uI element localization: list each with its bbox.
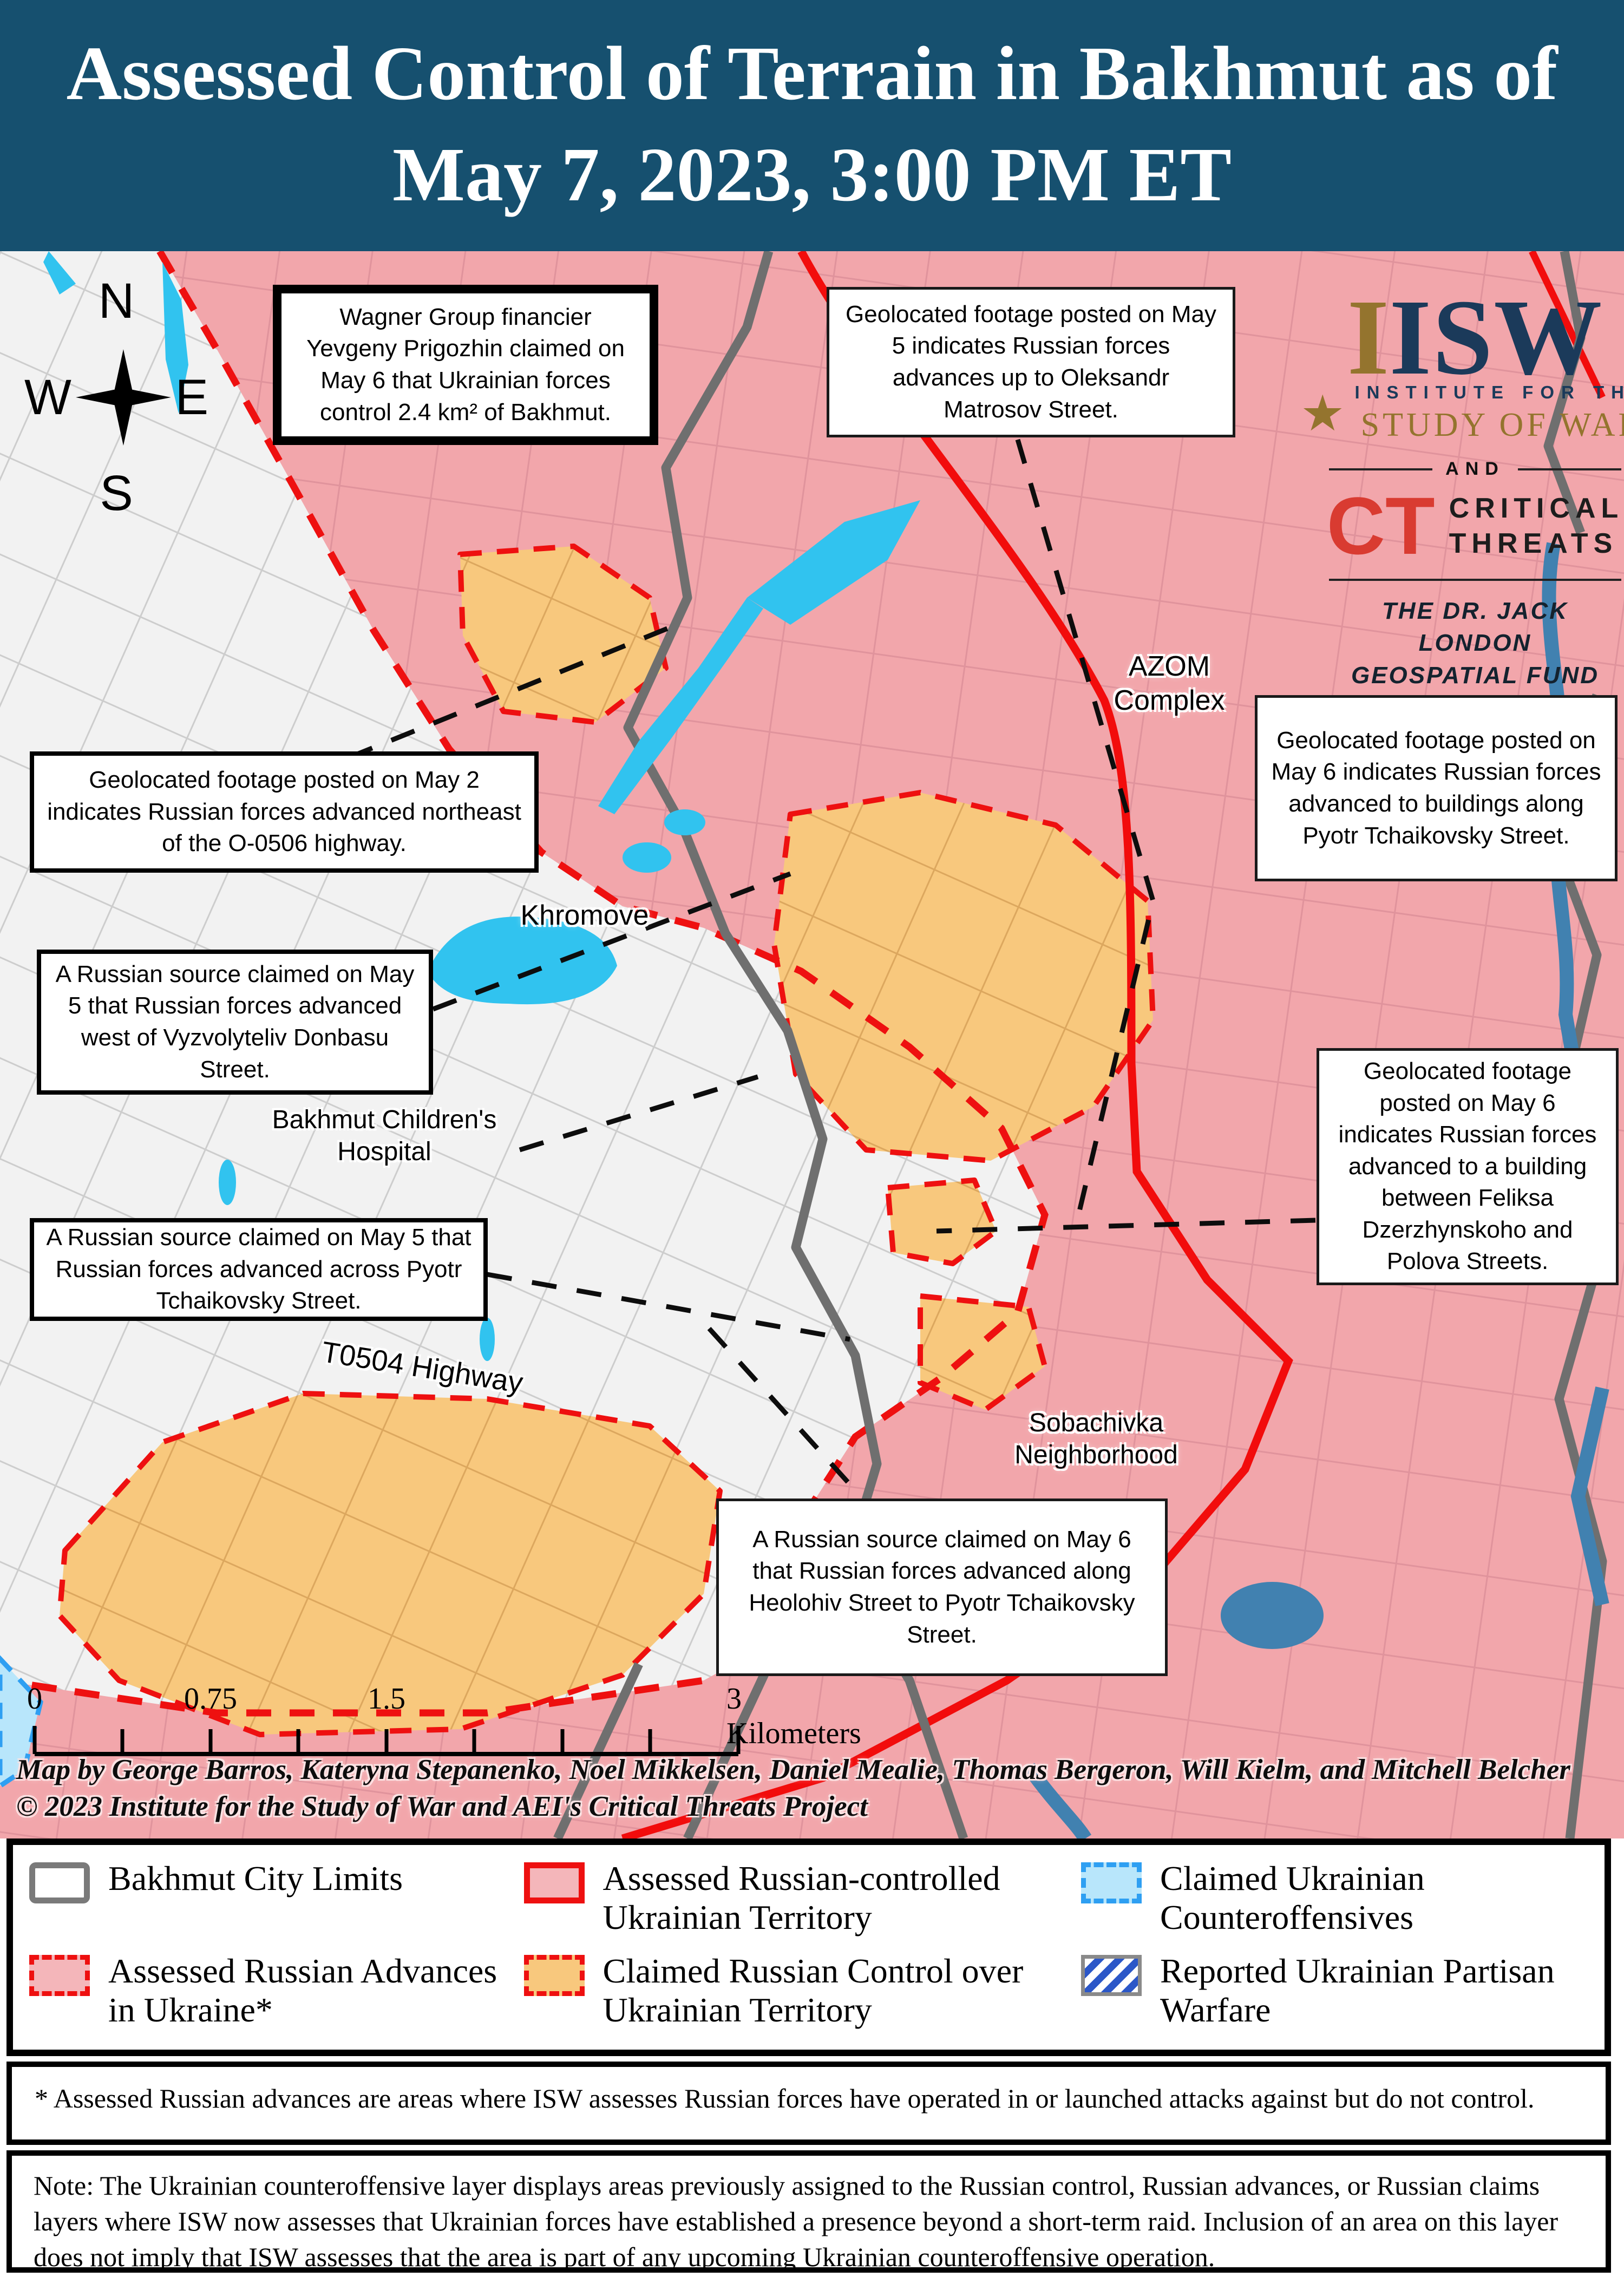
critical-text: CRITICAL xyxy=(1449,491,1624,526)
legend-panel: Bakhmut City Limits Assessed Russian Adv… xyxy=(6,1838,1611,2056)
map-label-khromove: Khromove xyxy=(476,899,693,933)
scale-tick-075: 0.75 xyxy=(184,1681,237,1716)
swatch-russian-advances-icon xyxy=(29,1955,90,1996)
map-credits: Map by George Barros, Kateryna Stepanenk… xyxy=(16,1752,1619,1825)
legend-label: Bakhmut City Limits xyxy=(108,1859,403,1898)
legend-label: Assessed Russian-controlled Ukrainian Te… xyxy=(603,1859,1082,1938)
legend-label: Assessed Russian Advances in Ukraine* xyxy=(108,1952,524,2030)
footnote-text: * Assessed Russian advances are areas wh… xyxy=(12,2067,1606,2130)
legend-item-city-limits: Bakhmut City Limits xyxy=(29,1859,524,1938)
compass-east-label: E xyxy=(175,369,208,426)
map-canvas: N W E S I ISW ★ INSTITUTE FOR THE xyxy=(0,251,1624,1838)
callout-vyzvolyteliv-donbasu: A Russian source claimed on May 5 that R… xyxy=(37,950,433,1095)
swatch-city-limits-icon xyxy=(29,1862,90,1903)
compass-star-icon xyxy=(76,330,171,465)
critical-threats-ct-icon: CT xyxy=(1327,489,1435,562)
scale-bar: 0 0.75 1.5 3 Kilometers xyxy=(22,1681,834,1757)
legend-item-partisan-warfare: Reported Ukrainian Partisan Warfare xyxy=(1081,1952,1599,2030)
page-title-line1: Assessed Control of Terrain in Bakhmut a… xyxy=(0,23,1624,124)
isw-study-of-war-text: STUDY OF WAR xyxy=(1361,406,1624,444)
legend-label: Reported Ukrainian Partisan Warfare xyxy=(1160,1952,1599,2030)
geospatial-fund-text: THE DR. JACK LONDON GEOSPATIAL FUND xyxy=(1329,595,1621,691)
star-icon: ★ xyxy=(1300,389,1345,439)
note-panel: Note: The Ukrainian counteroffensive lay… xyxy=(6,2150,1611,2273)
callout-tchaikovsky-buildings: Geolocated footage posted on May 6 indic… xyxy=(1255,695,1618,881)
isw-gold-i-mark: I xyxy=(1347,284,1390,392)
compass-south-label: S xyxy=(100,465,133,522)
callout-o0506-highway: Geolocated footage posted on May 2 indic… xyxy=(30,751,539,873)
map-label-bakhmut-childrens-hospital: Bakhmut Children's Hospital xyxy=(233,1104,536,1168)
swatch-russian-controlled-icon xyxy=(524,1862,585,1903)
scale-tick-15: 1.5 xyxy=(368,1681,405,1716)
compass-west-label: W xyxy=(24,369,71,426)
note-text: Note: The Ukrainian counteroffensive lay… xyxy=(12,2156,1606,2277)
scale-tick-0: 0 xyxy=(27,1681,42,1716)
logo-and-text: AND xyxy=(1445,459,1505,480)
map-label-sobachivka-neighborhood: Sobachivka Neighborhood xyxy=(980,1408,1213,1471)
isw-ct-logo: I ISW ★ INSTITUTE FOR THE STUDY OF WAR A… xyxy=(1329,284,1621,691)
swatch-partisan-warfare-icon xyxy=(1081,1955,1142,1996)
map-label-azom-complex: AZOM Complex xyxy=(1088,650,1250,718)
logo-divider xyxy=(1329,579,1621,581)
isw-institute-text: INSTITUTE FOR THE xyxy=(1355,382,1624,403)
footnote-panel: * Assessed Russian advances are areas wh… xyxy=(6,2062,1611,2145)
title-bar: Assessed Control of Terrain in Bakhmut a… xyxy=(0,0,1624,251)
credits-copyright: © 2023 Institute for the Study of War an… xyxy=(16,1789,1619,1825)
callout-feliksa-polova: Geolocated footage posted on May 6 indic… xyxy=(1317,1048,1619,1285)
legend-item-claimed-russian: Claimed Russian Control over Ukrainian T… xyxy=(524,1952,1082,2030)
callout-wagner-claim: Wagner Group financier Yevgeny Prigozhin… xyxy=(273,285,658,445)
legend-item-ukrainian-counteroffensives: Claimed Ukrainian Counteroffensives xyxy=(1081,1859,1599,1938)
compass-north-label: N xyxy=(99,273,134,330)
threats-text: THREATS xyxy=(1449,526,1624,561)
compass-rose-icon: N W E S xyxy=(24,273,208,516)
callout-heolohiv-street: A Russian source claimed on May 6 that R… xyxy=(716,1499,1168,1676)
callout-across-tchaikovsky: A Russian source claimed on May 5 that R… xyxy=(30,1218,488,1321)
isw-bakhmut-map-page: Assessed Control of Terrain in Bakhmut a… xyxy=(0,0,1624,2277)
legend-label: Claimed Russian Control over Ukrainian T… xyxy=(603,1952,1082,2030)
legend-label: Claimed Ukrainian Counteroffensives xyxy=(1160,1859,1599,1938)
legend-item-russian-advances: Assessed Russian Advances in Ukraine* xyxy=(29,1952,524,2030)
scale-bar-ticks xyxy=(22,1722,747,1756)
isw-wordmark: ISW xyxy=(1389,284,1603,392)
legend-item-russian-controlled: Assessed Russian-controlled Ukrainian Te… xyxy=(524,1859,1082,1938)
credits-authors: Map by George Barros, Kateryna Stepanenk… xyxy=(16,1752,1619,1789)
page-title-line2: May 7, 2023, 3:00 PM ET xyxy=(0,124,1624,225)
swatch-claimed-russian-icon xyxy=(524,1955,585,1996)
swatch-counteroffensives-icon xyxy=(1081,1862,1142,1903)
callout-matrosov-street: Geolocated footage posted on May 5 indic… xyxy=(827,287,1235,437)
